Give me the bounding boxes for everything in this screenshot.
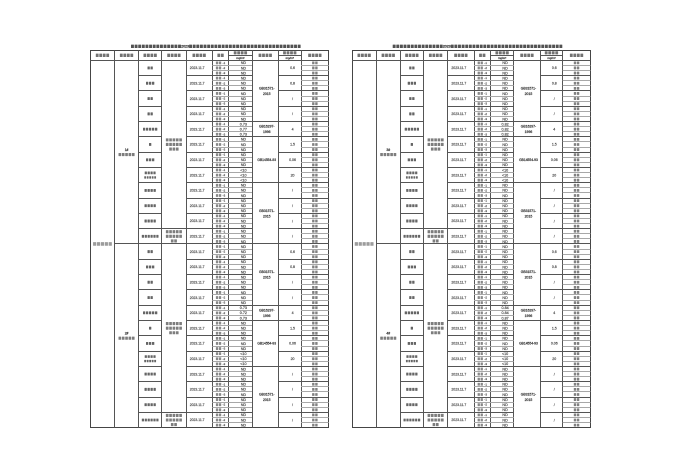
svg-text:ND: ND: [241, 260, 247, 264]
svg-text:ND: ND: [241, 398, 247, 402]
svg-text:-1: -1: [223, 398, 226, 402]
svg-text:2023.11.7: 2023.11.7: [451, 173, 466, 177]
svg-text:2023.11.7: 2023.11.7: [190, 127, 205, 131]
svg-text:/: /: [292, 219, 293, 223]
svg-text:-2: -2: [223, 403, 226, 407]
svg-text:-2: -2: [484, 81, 487, 85]
svg-text:-2: -2: [484, 234, 487, 238]
svg-text:ND: ND: [241, 265, 247, 269]
svg-text:0.06: 0.06: [289, 342, 296, 346]
svg-text:0.73: 0.73: [240, 306, 247, 310]
svg-text:2023.11.7: 2023.11.7: [190, 189, 205, 193]
svg-text:-2: -2: [484, 265, 487, 269]
svg-text:GB31571-: GB31571-: [259, 209, 274, 213]
svg-text:3#: 3#: [386, 148, 390, 152]
svg-text:/: /: [292, 235, 293, 239]
svg-text:-3: -3: [223, 148, 226, 152]
svg-text:/: /: [292, 204, 293, 208]
svg-text:GB16297-: GB16297-: [259, 308, 274, 312]
svg-text:ND: ND: [502, 291, 508, 295]
svg-text:-2: -2: [223, 97, 226, 101]
svg-text:ND: ND: [241, 342, 247, 346]
svg-text:-2: -2: [223, 357, 226, 361]
svg-text:ND: ND: [502, 275, 508, 279]
svg-text:ND: ND: [502, 281, 508, 285]
svg-text:GB14554-93: GB14554-93: [519, 342, 538, 346]
svg-text:-3: -3: [223, 285, 226, 289]
svg-text:2023.11.7: 2023.11.7: [190, 265, 205, 269]
svg-text:/: /: [292, 403, 293, 407]
svg-text:-1: -1: [484, 92, 487, 96]
svg-text:<10: <10: [240, 362, 246, 366]
svg-text:-2: -2: [484, 204, 487, 208]
svg-text:/: /: [554, 204, 555, 208]
svg-text:-2: -2: [223, 311, 226, 315]
svg-text:-1: -1: [223, 245, 226, 249]
svg-text:-3: -3: [484, 316, 487, 320]
svg-text:-2: -2: [484, 403, 487, 407]
svg-text:ND: ND: [502, 367, 508, 371]
svg-text:4: 4: [553, 127, 555, 131]
svg-text:-3: -3: [223, 239, 226, 243]
svg-text:2023.11.7: 2023.11.7: [451, 158, 466, 162]
svg-text:-1: -1: [223, 122, 226, 126]
svg-text:ND: ND: [241, 71, 247, 75]
svg-text:ND: ND: [502, 184, 508, 188]
svg-text:-1: -1: [223, 92, 226, 96]
svg-text:GB31571-: GB31571-: [259, 86, 274, 90]
svg-text:2023.11.7: 2023.11.7: [451, 81, 466, 85]
svg-text:-2: -2: [484, 97, 487, 101]
svg-text:2023.11.7: 2023.11.7: [190, 357, 205, 361]
svg-text:2023.11.7: 2023.11.7: [190, 372, 205, 376]
svg-text:/: /: [554, 97, 555, 101]
svg-text:-1: -1: [223, 275, 226, 279]
svg-text:-3: -3: [484, 393, 487, 397]
svg-text:-1: -1: [484, 229, 487, 233]
svg-text:-3: -3: [223, 117, 226, 121]
svg-text:2023.11.7: 2023.11.7: [451, 418, 466, 422]
svg-text:ND: ND: [241, 367, 247, 371]
svg-text:ND: ND: [502, 230, 508, 234]
svg-text:1#: 1#: [125, 148, 129, 152]
svg-text:-1: -1: [223, 413, 226, 417]
svg-text:ND: ND: [241, 82, 247, 86]
svg-text:ND: ND: [241, 117, 247, 121]
svg-text:ND: ND: [241, 393, 247, 397]
svg-text:ND: ND: [502, 158, 508, 162]
svg-text:-2: -2: [223, 188, 226, 192]
svg-text:-2: -2: [484, 143, 487, 147]
svg-text:ND: ND: [502, 270, 508, 274]
svg-text:ND: ND: [502, 189, 508, 193]
svg-text:ND: ND: [502, 286, 508, 290]
svg-text:ND: ND: [241, 163, 247, 167]
svg-text:mg/m³: mg/m³: [286, 56, 294, 60]
svg-text:-2: -2: [484, 188, 487, 192]
svg-text:ND: ND: [502, 87, 508, 91]
svg-text:ND: ND: [241, 372, 247, 376]
svg-text:0.6: 0.6: [552, 250, 557, 254]
svg-text:ND: ND: [241, 291, 247, 295]
svg-text:ND: ND: [502, 342, 508, 346]
svg-text:-1: -1: [484, 260, 487, 264]
svg-text:0.6: 0.6: [552, 66, 557, 70]
svg-text:ND: ND: [502, 112, 508, 116]
svg-text:-2: -2: [484, 326, 487, 330]
svg-text:2023.11.7: 2023.11.7: [190, 296, 205, 300]
svg-text:ND: ND: [502, 296, 508, 300]
svg-text:ND: ND: [241, 61, 247, 65]
svg-text:ND: ND: [502, 82, 508, 86]
svg-text:ND: ND: [241, 153, 247, 157]
svg-text:-1: -1: [484, 122, 487, 126]
svg-text:2023.11.7: 2023.11.7: [451, 219, 466, 223]
svg-text:mg/m³: mg/m³: [547, 56, 555, 60]
svg-text:/: /: [554, 296, 555, 300]
svg-text:ND: ND: [241, 184, 247, 188]
svg-text:/: /: [554, 388, 555, 392]
svg-text:ND: ND: [502, 199, 508, 203]
svg-text:2023.11.7: 2023.11.7: [190, 66, 205, 70]
svg-text:0.06: 0.06: [551, 342, 558, 346]
svg-text:2023.11.7: 2023.11.7: [190, 326, 205, 330]
svg-text:ND: ND: [502, 61, 508, 65]
svg-text:-1: -1: [223, 199, 226, 203]
svg-text:0.8: 0.8: [290, 82, 295, 86]
svg-text:2023.11.7: 2023.11.7: [451, 326, 466, 330]
svg-text:ND: ND: [241, 224, 247, 228]
svg-text:GB31571-: GB31571-: [521, 270, 536, 274]
svg-text:ND: ND: [241, 255, 247, 259]
svg-text:ND: ND: [502, 326, 508, 330]
svg-text:ND: ND: [502, 393, 508, 397]
svg-text:2023.11.7: 2023.11.7: [451, 280, 466, 284]
svg-text:ND: ND: [502, 403, 508, 407]
svg-text:-1: -1: [484, 398, 487, 402]
svg-text:2023: 2023: [443, 45, 451, 49]
svg-text:-1: -1: [223, 336, 226, 340]
svg-text:ND: ND: [502, 240, 508, 244]
svg-text:<10: <10: [240, 357, 246, 361]
svg-text:ND: ND: [502, 347, 508, 351]
svg-text:-2: -2: [223, 112, 226, 116]
svg-text:-3: -3: [484, 331, 487, 335]
svg-text:ND: ND: [241, 423, 247, 427]
svg-text:<10: <10: [502, 179, 508, 183]
svg-text:2023.11.7: 2023.11.7: [451, 403, 466, 407]
svg-text:-1: -1: [223, 183, 226, 187]
svg-text:2023.11.7: 2023.11.7: [190, 280, 205, 284]
svg-text:-1: -1: [484, 336, 487, 340]
svg-text:-3: -3: [484, 224, 487, 228]
svg-text:2023.11.7: 2023.11.7: [190, 81, 205, 85]
svg-text:-2: -2: [484, 280, 487, 284]
svg-text:/: /: [554, 281, 555, 285]
svg-text:-1: -1: [223, 214, 226, 218]
svg-text:0.82: 0.82: [502, 122, 509, 126]
svg-text:-2: -2: [223, 280, 226, 284]
svg-text:ND: ND: [241, 332, 247, 336]
svg-text:2023.11.7: 2023.11.7: [451, 127, 466, 131]
svg-text:-1: -1: [223, 321, 226, 325]
svg-text:2023.11.7: 2023.11.7: [451, 265, 466, 269]
svg-text:1.5: 1.5: [552, 143, 557, 147]
svg-text:ND: ND: [241, 112, 247, 116]
svg-text:-2: -2: [484, 250, 487, 254]
svg-text:ND: ND: [502, 97, 508, 101]
svg-text:ND: ND: [241, 245, 247, 249]
svg-text:2023.11.7: 2023.11.7: [190, 250, 205, 254]
svg-text:20: 20: [552, 357, 556, 361]
svg-text:-1: -1: [484, 76, 487, 80]
svg-text:ND: ND: [241, 158, 247, 162]
svg-text:-3: -3: [484, 86, 487, 90]
svg-text:-3: -3: [223, 209, 226, 213]
svg-text:0.84: 0.84: [502, 306, 509, 310]
svg-text:-3: -3: [484, 285, 487, 289]
svg-text:20: 20: [552, 173, 556, 177]
svg-text:-1: -1: [223, 290, 226, 294]
svg-text:0.87: 0.87: [502, 316, 509, 320]
svg-text:ND: ND: [241, 138, 247, 142]
svg-text:-3: -3: [223, 362, 226, 366]
svg-text:ND: ND: [502, 92, 508, 96]
svg-text:-3: -3: [484, 117, 487, 121]
svg-text:ND: ND: [502, 102, 508, 106]
svg-text:2023.11.7: 2023.11.7: [451, 143, 466, 147]
svg-text:2023.11.7: 2023.11.7: [451, 235, 466, 239]
svg-text:0.82: 0.82: [502, 133, 509, 137]
svg-text:ND: ND: [502, 260, 508, 264]
svg-text:-3: -3: [223, 86, 226, 90]
svg-text:-1: -1: [223, 76, 226, 80]
svg-text:-3: -3: [484, 408, 487, 412]
svg-text:2015: 2015: [525, 92, 533, 96]
svg-text:ND: ND: [502, 163, 508, 167]
svg-text:GB31571-: GB31571-: [259, 393, 274, 397]
svg-text:-3: -3: [223, 163, 226, 167]
svg-text:-2: -2: [484, 173, 487, 177]
svg-text:ND: ND: [502, 107, 508, 111]
svg-text:1996: 1996: [263, 314, 271, 318]
svg-text:2023.11.7: 2023.11.7: [190, 311, 205, 315]
svg-text:-3: -3: [484, 209, 487, 213]
svg-text:-3: -3: [223, 178, 226, 182]
svg-text:2023.11.7: 2023.11.7: [451, 204, 466, 208]
svg-text:ND: ND: [241, 403, 247, 407]
svg-text:ND: ND: [241, 301, 247, 305]
svg-text:0.73: 0.73: [240, 122, 247, 126]
svg-text:<10: <10: [240, 173, 246, 177]
svg-text:2023.11.7: 2023.11.7: [451, 97, 466, 101]
svg-text:2015: 2015: [263, 398, 271, 402]
svg-text:-2: -2: [484, 387, 487, 391]
svg-text:1996: 1996: [263, 130, 271, 134]
svg-text:-2: -2: [223, 158, 226, 162]
svg-text:-3: -3: [223, 224, 226, 228]
svg-text:-1: -1: [223, 153, 226, 157]
svg-text:/: /: [292, 112, 293, 116]
svg-text:GB16297-: GB16297-: [521, 308, 536, 312]
svg-text:ND: ND: [241, 219, 247, 223]
svg-text:ND: ND: [502, 209, 508, 213]
svg-text:ND: ND: [241, 413, 247, 417]
svg-text:-3: -3: [484, 347, 487, 351]
svg-text:-3: -3: [223, 301, 226, 305]
svg-text:GB16297-: GB16297-: [521, 125, 536, 129]
svg-text:0.77: 0.77: [240, 128, 247, 132]
svg-text:-1: -1: [223, 260, 226, 264]
svg-text:<10: <10: [240, 352, 246, 356]
svg-text:GB31571-: GB31571-: [259, 270, 274, 274]
svg-text:ND: ND: [502, 214, 508, 218]
svg-text:-3: -3: [223, 377, 226, 381]
svg-text:-1: -1: [223, 61, 226, 65]
svg-text:0.8: 0.8: [290, 265, 295, 269]
svg-text:ND: ND: [241, 66, 247, 70]
svg-text:ND: ND: [241, 199, 247, 203]
svg-text:2023.11.7: 2023.11.7: [190, 97, 205, 101]
svg-text:2023.11.7: 2023.11.7: [190, 173, 205, 177]
svg-text:/: /: [554, 219, 555, 223]
svg-text:ND: ND: [502, 204, 508, 208]
svg-text:0.8: 0.8: [552, 265, 557, 269]
svg-text:mg/m³: mg/m³: [498, 56, 506, 60]
svg-text:0.82: 0.82: [502, 128, 509, 132]
svg-text:-2: -2: [223, 143, 226, 147]
svg-text:ND: ND: [241, 388, 247, 392]
svg-text:-2: -2: [223, 250, 226, 254]
svg-text:<10: <10: [240, 179, 246, 183]
svg-text:-3: -3: [223, 347, 226, 351]
svg-text:1996: 1996: [525, 314, 533, 318]
svg-text:ND: ND: [502, 265, 508, 269]
svg-text:/: /: [554, 372, 555, 376]
svg-text:ND: ND: [502, 66, 508, 70]
svg-text:2023.11.7: 2023.11.7: [190, 204, 205, 208]
svg-text:-2: -2: [223, 204, 226, 208]
svg-text:ND: ND: [502, 337, 508, 341]
svg-text:-3: -3: [223, 132, 226, 136]
svg-text:0.73: 0.73: [240, 133, 247, 137]
svg-text:GB31571-: GB31571-: [521, 209, 536, 213]
svg-text:<10: <10: [502, 168, 508, 172]
svg-text:2023.11.7: 2023.11.7: [451, 342, 466, 346]
svg-text:0.6: 0.6: [290, 66, 295, 70]
svg-text:ND: ND: [502, 194, 508, 198]
svg-text:-2: -2: [484, 357, 487, 361]
svg-text:-3: -3: [484, 239, 487, 243]
svg-text:1.5: 1.5: [290, 326, 295, 330]
svg-text:2023.11.7: 2023.11.7: [190, 219, 205, 223]
svg-text:-2: -2: [484, 418, 487, 422]
svg-text:ND: ND: [241, 143, 247, 147]
svg-text:ND: ND: [502, 250, 508, 254]
svg-text:ND: ND: [502, 224, 508, 228]
svg-text:20: 20: [291, 173, 295, 177]
svg-text:-2: -2: [223, 387, 226, 391]
svg-text:/: /: [554, 418, 555, 422]
svg-text:ND: ND: [241, 209, 247, 213]
svg-text:4: 4: [292, 127, 294, 131]
svg-text:/: /: [554, 235, 555, 239]
svg-text:-3: -3: [223, 423, 226, 427]
svg-text:/: /: [292, 281, 293, 285]
svg-text:-2: -2: [223, 418, 226, 422]
svg-text:2023: 2023: [181, 45, 189, 49]
svg-text:2015: 2015: [525, 398, 533, 402]
svg-text:ND: ND: [241, 250, 247, 254]
svg-text:2015: 2015: [525, 276, 533, 280]
svg-text:-1: -1: [223, 382, 226, 386]
svg-text:GB31571-: GB31571-: [521, 393, 536, 397]
svg-text:2015: 2015: [525, 214, 533, 218]
svg-text:ND: ND: [241, 296, 247, 300]
svg-text:-1: -1: [223, 229, 226, 233]
svg-text:-2: -2: [223, 66, 226, 70]
svg-text:GB14554-93: GB14554-93: [257, 342, 276, 346]
svg-text:<10: <10: [502, 357, 508, 361]
svg-text:-2: -2: [484, 342, 487, 346]
svg-text:-3: -3: [484, 148, 487, 152]
svg-text:ND: ND: [241, 92, 247, 96]
svg-text:-1: -1: [484, 183, 487, 187]
svg-text:-3: -3: [223, 316, 226, 320]
svg-text:-3: -3: [484, 102, 487, 106]
svg-text:GB16297-: GB16297-: [259, 125, 274, 129]
svg-text:2023.11.7: 2023.11.7: [451, 311, 466, 315]
svg-text:-1: -1: [223, 107, 226, 111]
svg-text:-1: -1: [484, 367, 487, 371]
svg-text:0.06: 0.06: [289, 158, 296, 162]
svg-text:4: 4: [553, 311, 555, 315]
svg-text:2023.11.7: 2023.11.7: [190, 403, 205, 407]
svg-text:ND: ND: [502, 143, 508, 147]
svg-text:ND: ND: [241, 337, 247, 341]
svg-text:2023.11.7: 2023.11.7: [190, 158, 205, 162]
svg-text:-1: -1: [484, 168, 487, 172]
svg-text:-1: -1: [484, 153, 487, 157]
svg-text:2#: 2#: [125, 332, 129, 336]
svg-text:<10: <10: [240, 168, 246, 172]
svg-text:-2: -2: [223, 219, 226, 223]
svg-text:ND: ND: [241, 204, 247, 208]
svg-text:-2: -2: [223, 173, 226, 177]
svg-text:-1: -1: [223, 168, 226, 172]
svg-text:-3: -3: [223, 331, 226, 335]
svg-text:-1: -1: [223, 137, 226, 141]
svg-text:-1: -1: [484, 321, 487, 325]
svg-text:GB14554-93: GB14554-93: [257, 158, 276, 162]
svg-text:ND: ND: [502, 235, 508, 239]
svg-text:-1: -1: [484, 413, 487, 417]
svg-text:-2: -2: [223, 234, 226, 238]
svg-text:2023.11.7: 2023.11.7: [190, 388, 205, 392]
svg-text:ND: ND: [502, 117, 508, 121]
svg-text:-1: -1: [484, 137, 487, 141]
svg-text:2023.11.7: 2023.11.7: [451, 112, 466, 116]
svg-text:ND: ND: [502, 413, 508, 417]
svg-text:2015: 2015: [263, 214, 271, 218]
svg-text:0.06: 0.06: [551, 158, 558, 162]
svg-text:/: /: [292, 418, 293, 422]
svg-text:<10: <10: [502, 352, 508, 356]
svg-text:-2: -2: [223, 127, 226, 131]
svg-text:<10: <10: [502, 173, 508, 177]
svg-text:ND: ND: [502, 76, 508, 80]
svg-text:-3: -3: [484, 132, 487, 136]
